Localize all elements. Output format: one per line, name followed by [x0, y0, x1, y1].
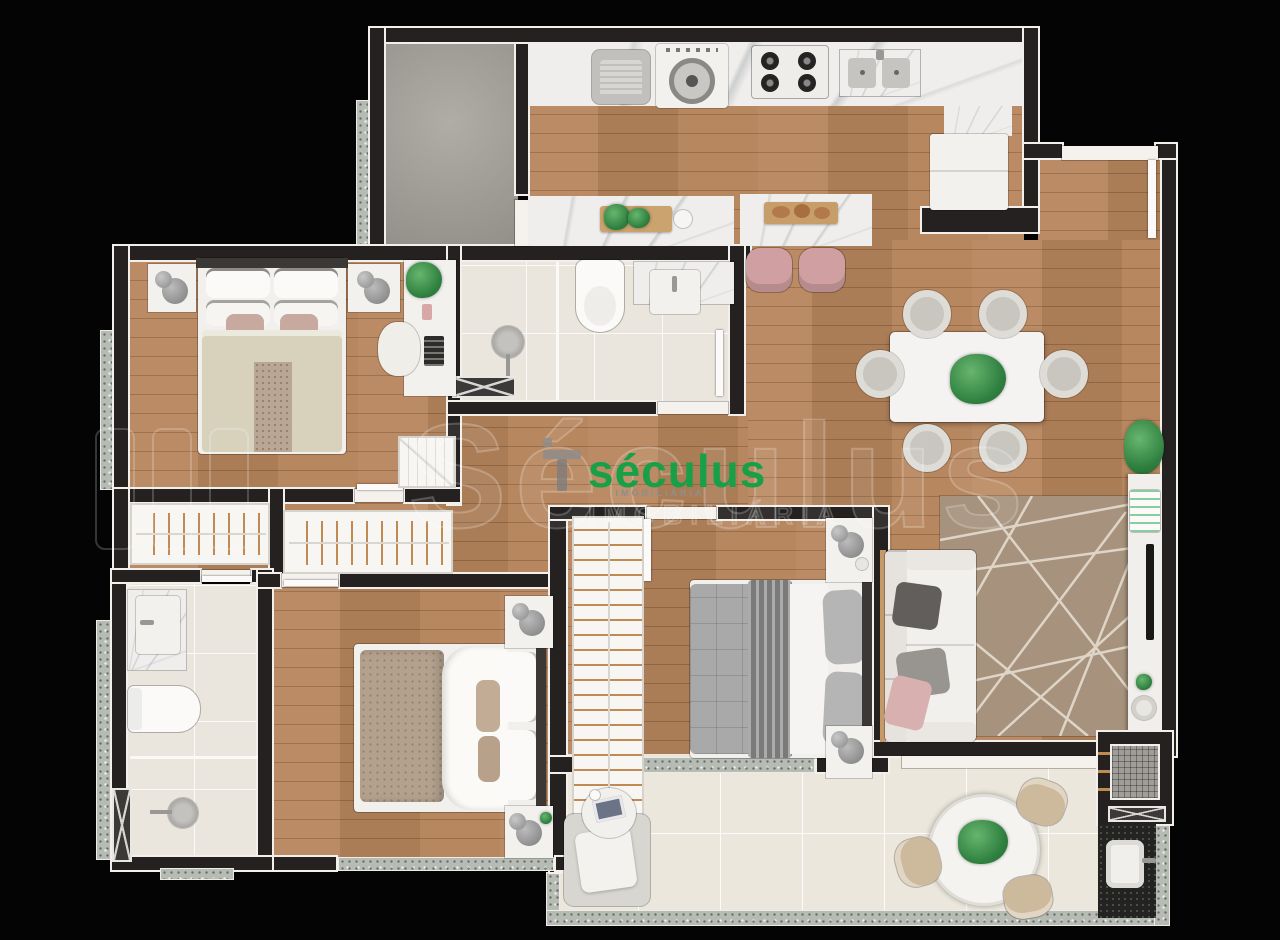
grill-hook	[1098, 752, 1110, 755]
bedroom1-door-threshold	[355, 489, 403, 502]
accent-pillow	[476, 680, 500, 732]
window-sill	[96, 620, 111, 860]
watermark-logo-bar	[152, 428, 192, 550]
bathroom2-door-leaf	[202, 576, 252, 582]
faucet-icon	[1142, 858, 1156, 863]
sofa-seat-seam	[906, 644, 974, 646]
washer-lid-dot	[686, 75, 698, 87]
bbq-grill	[1110, 744, 1160, 800]
entry-door-leaf	[1148, 160, 1156, 238]
bathroom1-door-leaf	[716, 330, 723, 396]
sink-drain	[860, 70, 865, 75]
toilet	[576, 260, 624, 332]
shower-arm	[150, 810, 172, 814]
wall	[110, 568, 202, 584]
wall	[1022, 142, 1064, 160]
faucet-icon	[672, 276, 677, 292]
tv	[1146, 544, 1154, 640]
service-room-floor	[382, 42, 518, 244]
bread	[772, 206, 790, 218]
keyboard	[424, 336, 444, 366]
grill-hook	[1098, 770, 1110, 773]
pillow	[274, 268, 338, 298]
sofa	[880, 550, 976, 742]
mini-plant	[540, 812, 552, 824]
laundry-sink	[592, 50, 650, 104]
bread	[814, 207, 830, 219]
dining-chair	[903, 290, 951, 338]
grill-hook	[1098, 788, 1110, 791]
closet	[130, 503, 270, 565]
laundry-sink-basin	[600, 60, 642, 96]
lamp	[364, 278, 390, 304]
throw-fold	[748, 580, 792, 758]
washer-controls	[666, 48, 718, 52]
entry-hall-floor	[1038, 158, 1162, 250]
lamp	[838, 738, 864, 764]
desk-chair	[378, 322, 420, 376]
wall	[1160, 156, 1178, 758]
accent-pillow	[478, 736, 500, 782]
cooktop	[752, 46, 828, 98]
lamp	[516, 820, 542, 846]
side-stool	[1132, 696, 1156, 720]
headboard	[536, 642, 546, 814]
pillow	[498, 652, 540, 722]
toilet-seat	[584, 286, 616, 326]
throw-blanket	[360, 650, 444, 802]
window-sill	[160, 868, 234, 880]
dining-chair	[1040, 350, 1088, 398]
wall	[338, 572, 566, 589]
seculus-logo-mark	[540, 436, 584, 492]
bar-stool	[799, 248, 845, 292]
pillow	[822, 589, 866, 665]
phone	[422, 304, 432, 320]
vanity-basin	[136, 596, 180, 654]
burner	[798, 52, 816, 70]
headboard	[196, 258, 348, 268]
toilet	[128, 686, 200, 732]
bowl	[674, 210, 692, 228]
fridge-door-seam	[930, 170, 1008, 172]
logo-mark-dot	[543, 438, 552, 447]
washing-machine	[656, 44, 728, 108]
toilet-tank	[128, 688, 142, 730]
dining-chair	[979, 290, 1027, 338]
wall	[368, 26, 386, 250]
bed-double	[354, 644, 546, 812]
bed-double	[198, 258, 346, 454]
watermark-logo-bar	[95, 428, 135, 550]
balcony-border-bottom	[546, 910, 1168, 926]
bar-stool	[746, 248, 792, 292]
dining-chair	[856, 350, 904, 398]
bread	[794, 204, 810, 218]
bedroom2-door-leaf	[284, 580, 338, 586]
burner	[761, 74, 779, 92]
watermark-logo-bar	[209, 428, 249, 550]
floor-plan: Séculus IMOBILIÁRIA séculus IMOBILIÁRIA	[0, 0, 1280, 940]
window-sill	[637, 757, 815, 773]
window-sill	[338, 857, 554, 871]
watermark-outline-subtitle: IMOBILIÁRIA	[588, 500, 844, 531]
pillow	[206, 268, 270, 298]
refrigerator	[930, 134, 1008, 210]
faucet-icon	[876, 50, 884, 60]
burner	[761, 52, 779, 70]
closet-rail	[608, 522, 610, 812]
seculus-logo-subtitle: IMOBILIÁRIA	[590, 488, 730, 498]
kitchen-counter-right	[944, 106, 1012, 136]
shower-head	[168, 798, 198, 828]
bedroom1-door-leaf	[357, 484, 403, 490]
shower-glass	[130, 756, 258, 759]
window-hatch	[1108, 806, 1166, 822]
sink-drain	[894, 70, 899, 75]
window-hatch	[112, 788, 132, 862]
faucet-icon	[140, 620, 154, 625]
bed-runner	[254, 362, 292, 452]
wall	[256, 568, 274, 872]
kitchen-double-sink	[840, 50, 920, 96]
logo-mark-stem	[557, 459, 567, 491]
bbq-sink	[1106, 840, 1144, 888]
balcony-door-threshold	[902, 756, 1100, 768]
wall	[920, 206, 1040, 234]
logo-mark-bar	[543, 450, 581, 459]
entry-door-threshold	[1062, 146, 1158, 160]
vanity-basin	[650, 270, 700, 314]
lamp	[162, 278, 188, 304]
ac-unit	[1130, 490, 1160, 532]
wall	[1022, 26, 1040, 212]
pillow	[498, 730, 540, 800]
lamp	[519, 610, 545, 636]
shower-glass	[556, 262, 559, 400]
pillow	[891, 581, 943, 631]
wall	[256, 572, 282, 589]
cup	[590, 790, 600, 800]
burner	[798, 74, 816, 92]
